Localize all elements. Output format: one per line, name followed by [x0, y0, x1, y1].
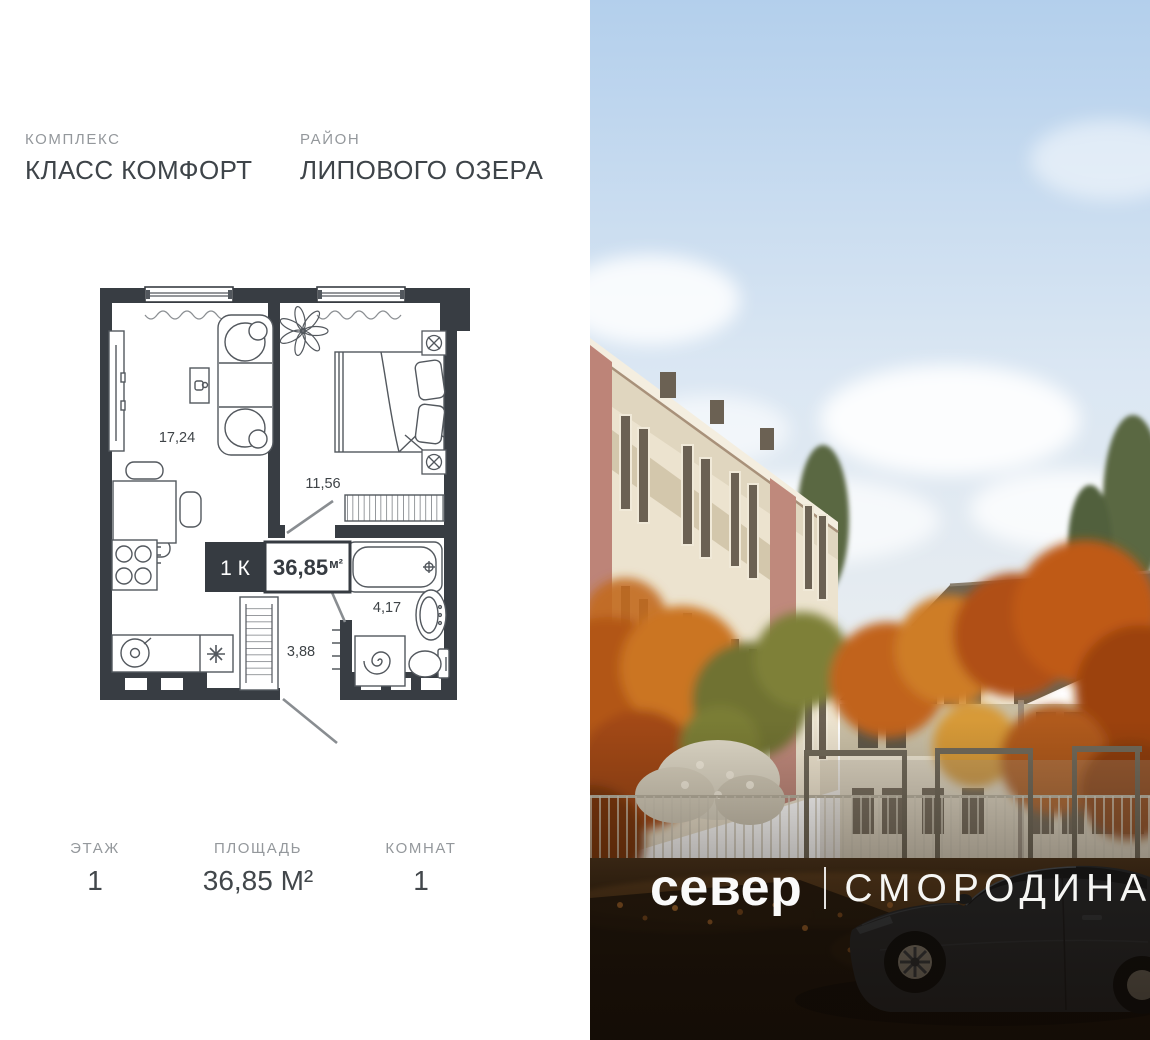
kitchen-counter [112, 635, 233, 672]
complex-header: КОМПЛЕКС КЛАСС КОМФОРТ [25, 131, 252, 186]
bathroom-area-label: 4,17 [373, 600, 401, 616]
window-bedroom [317, 287, 405, 302]
complex-label: КОМПЛЕКС [25, 131, 252, 148]
project-photo: север СМОРОДИНА [590, 0, 1150, 1040]
brand-divider-line [824, 867, 826, 909]
district-header: РАЙОН ЛИПОВОГО ОЗЕРА [300, 131, 543, 186]
rooms-value: 1 [385, 865, 456, 897]
floor-label: ЭТАЖ [70, 840, 120, 857]
area-value: 36,85 М² [203, 865, 314, 897]
living-area-label: 17,24 [159, 430, 195, 446]
plant [279, 306, 328, 357]
floor-value: 1 [70, 865, 120, 897]
summary-area: ПЛОЩАДЬ 36,85 М² [203, 840, 314, 897]
badge-rooms: 1 К [220, 557, 251, 580]
district-label: РАЙОН [300, 131, 543, 148]
area-label: ПЛОЩАДЬ [203, 840, 314, 857]
bed [335, 352, 446, 452]
apartment-listing-card[interactable]: КОМПЛЕКС КЛАСС КОМФОРТ РАЙОН ЛИПОВОГО ОЗ… [0, 0, 1150, 1040]
rooms-label: КОМНАТ [385, 840, 456, 857]
wardrobe [240, 597, 278, 690]
floor-plan: 17,24 11,56 4,17 3,88 1 К 36,85м² [70, 280, 475, 745]
complex-name: КЛАСС КОМФОРТ [25, 155, 252, 186]
summary-floor: ЭТАЖ 1 [70, 840, 120, 897]
stove [112, 540, 161, 590]
bath-sink [416, 590, 446, 640]
district-name: ЛИПОВОГО ОЗЕРА [300, 155, 543, 186]
summary-rooms: КОМНАТ 1 [385, 840, 456, 897]
tv-unit [109, 331, 125, 451]
hallway-area-label: 3,88 [287, 644, 315, 660]
brand-project-name: СМОРОДИНА [844, 869, 1150, 908]
toilet [409, 649, 449, 678]
bedroom-radiator [345, 495, 444, 521]
window-living [145, 287, 233, 302]
bedroom-area-label: 11,56 [305, 476, 340, 492]
area-badge: 1 К 36,85м² [205, 542, 350, 592]
brand-name: север [650, 862, 802, 914]
bathtub [347, 542, 442, 592]
sofa [218, 315, 273, 455]
hall-radiator [332, 630, 340, 669]
brand-logo: север СМОРОДИНА [650, 846, 1150, 930]
washing-machine [355, 636, 405, 686]
coffee-table [190, 368, 209, 403]
